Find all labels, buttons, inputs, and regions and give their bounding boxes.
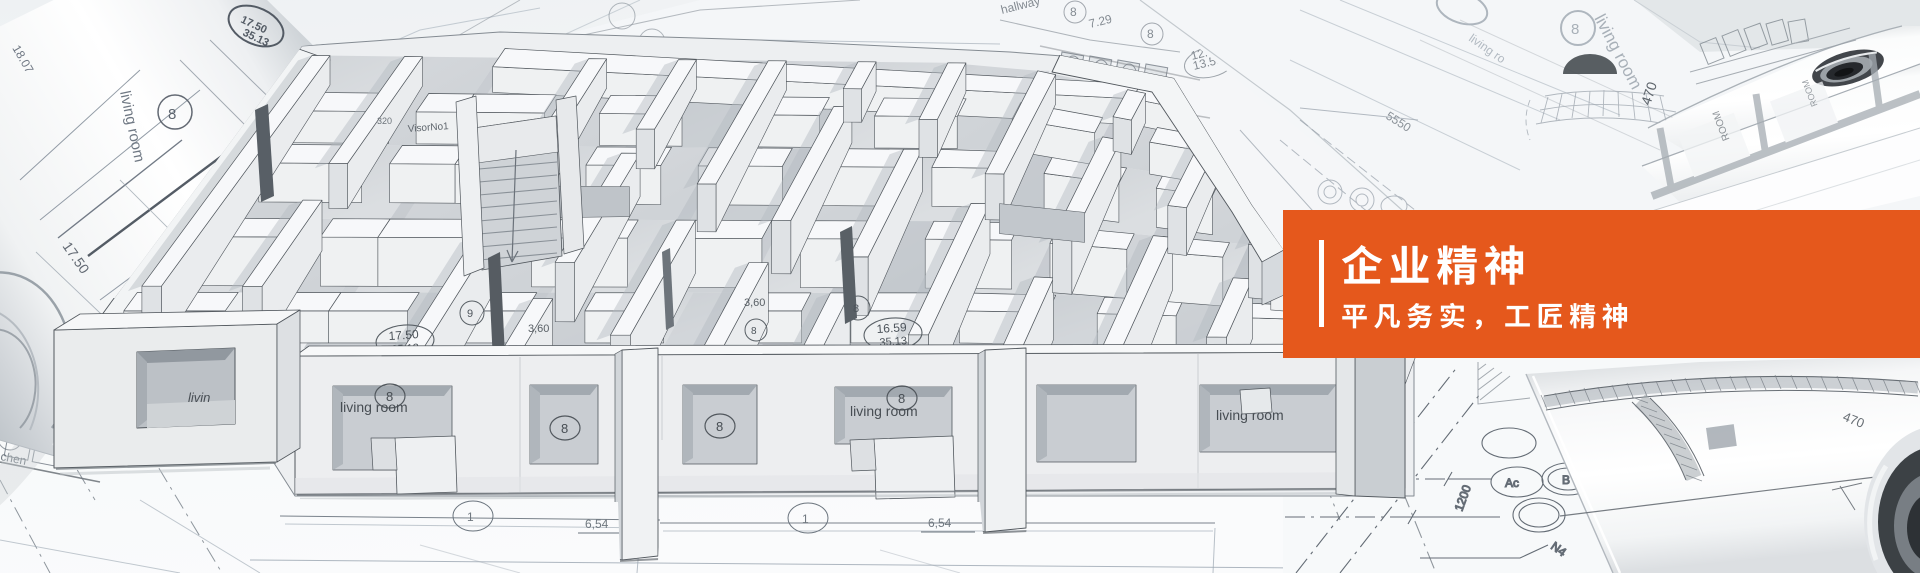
svg-text:8: 8 (1070, 5, 1077, 19)
svg-text:8: 8 (751, 326, 757, 337)
svg-text:1: 1 (467, 510, 474, 524)
svg-text:3,60: 3,60 (528, 323, 549, 335)
svg-text:320: 320 (377, 116, 392, 126)
svg-text:16.59: 16.59 (876, 320, 907, 336)
svg-text:3,60: 3,60 (744, 297, 765, 309)
svg-text:9: 9 (467, 308, 473, 320)
svg-text:Ac: Ac (1505, 476, 1519, 490)
svg-text:B: B (1562, 473, 1570, 487)
svg-text:6,54: 6,54 (585, 517, 609, 531)
svg-text:living room: living room (340, 399, 408, 415)
svg-text:8: 8 (168, 106, 176, 123)
svg-text:8: 8 (1147, 27, 1154, 41)
svg-text:6,54: 6,54 (928, 516, 952, 530)
svg-text:8: 8 (853, 303, 859, 315)
svg-text:1: 1 (802, 512, 809, 526)
svg-text:8: 8 (561, 421, 568, 436)
svg-text:livin: livin (188, 390, 210, 405)
svg-text:8: 8 (1571, 21, 1579, 38)
svg-text:17.50: 17.50 (388, 327, 419, 343)
svg-text:8: 8 (716, 419, 723, 434)
svg-text:living room: living room (850, 403, 918, 419)
